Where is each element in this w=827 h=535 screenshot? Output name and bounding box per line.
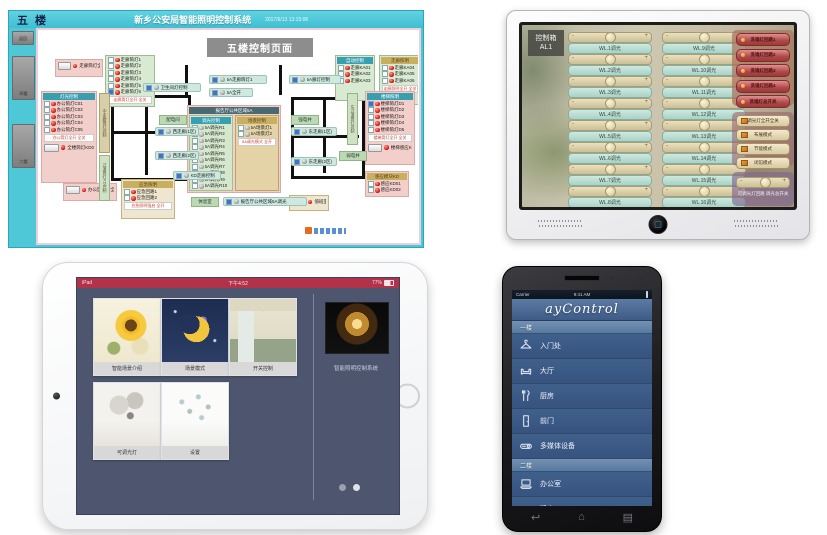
mode-button[interactable]: 节能模式 xyxy=(736,143,790,155)
dimmer-group: -+WL.5调光 xyxy=(568,120,652,142)
checkbox[interactable] xyxy=(294,159,300,165)
checkbox[interactable] xyxy=(238,131,244,137)
row-label: 5A调光R10 xyxy=(205,183,228,189)
minus-icon[interactable]: - xyxy=(666,77,668,84)
wall-washer-panel: 洗墙灯回路1洗墙灯回路2洗墙灯回路3洗墙灯回路4洗墙灯总开关 xyxy=(732,30,794,106)
kitchen-image xyxy=(230,299,296,362)
checkbox[interactable] xyxy=(176,173,182,179)
zone-footer: 办公筒灯全开 全关 xyxy=(44,134,94,142)
checkbox[interactable] xyxy=(44,120,50,126)
lamp-dot-icon xyxy=(741,38,745,42)
status-lamp-icon xyxy=(115,77,120,82)
indicator-row: 感应KD02 xyxy=(368,188,406,194)
collage-canvas: 五 楼 新乡公安局智能照明控制系统 2017/6/13 13:15:06 返回四… xyxy=(0,0,827,535)
checkbox[interactable] xyxy=(368,127,374,133)
checkbox[interactable] xyxy=(108,57,114,63)
status-lamp-icon xyxy=(345,72,350,77)
laptop-icon xyxy=(512,477,540,491)
minus-icon[interactable]: - xyxy=(572,55,574,62)
status-lamp-icon xyxy=(115,64,120,69)
page-dot-1[interactable] xyxy=(339,484,346,491)
checkbox[interactable] xyxy=(44,107,50,113)
row-label: 楼梯筒灯D5 xyxy=(381,127,405,133)
wall-washer-button[interactable]: 洗墙灯回路4 xyxy=(736,80,790,93)
slider-knob[interactable] xyxy=(699,54,710,65)
checkbox[interactable] xyxy=(192,144,198,150)
zone-panel: 应急照明应急回路1应急回路2应急照明强启 全开 xyxy=(121,179,175,219)
phone-navbar: ↩ ⌂ ▤ xyxy=(512,508,652,526)
minus-icon[interactable]: - xyxy=(666,143,668,150)
status-lamp-icon xyxy=(375,102,380,107)
scene-tile-sunflower[interactable]: 智能场景介绍 xyxy=(93,298,161,376)
switch-label: 西走廊(2区) xyxy=(173,153,197,159)
status-lamp-icon xyxy=(302,159,307,164)
scada-app-title: 新乡公安局智能照明控制系统 xyxy=(134,13,251,26)
plus-icon[interactable]: + xyxy=(644,77,648,84)
phone-front-camera xyxy=(611,276,614,279)
checkbox[interactable] xyxy=(158,153,164,159)
row-label: 应急回路2 xyxy=(137,195,158,201)
room-item-door[interactable]: 前门 xyxy=(512,409,652,434)
minus-icon[interactable]: - xyxy=(666,187,668,194)
status-lamp-icon xyxy=(184,173,189,178)
status-lamp-icon xyxy=(384,145,389,150)
lamp-dot-icon xyxy=(741,84,745,88)
row-label: 走廊KA03 xyxy=(351,78,371,84)
phone-carrier: Carrier xyxy=(516,292,530,297)
row-label: 走廊筒灯3 xyxy=(121,70,142,76)
minus-icon[interactable]: - xyxy=(666,99,668,106)
status-lamp-icon xyxy=(73,64,78,69)
wall-washer-button[interactable]: 洗墙灯回路1 xyxy=(736,33,790,46)
row-label: 走廊KA04 xyxy=(395,65,415,71)
bed-icon xyxy=(512,502,540,506)
menu-icon[interactable]: ▤ xyxy=(623,511,633,524)
plus-icon[interactable]: + xyxy=(644,187,648,194)
indicator-row: 办公筒灯C04 xyxy=(44,121,94,127)
indicator-row: 5A场景灯2 xyxy=(238,132,276,138)
system-title: 智能照明控制系统 xyxy=(317,364,395,372)
status-lamp-icon xyxy=(375,128,380,133)
button-label: 闭馆模式 xyxy=(754,160,772,166)
switch-label: 报告厅公共区域5A调光 xyxy=(241,199,287,205)
slider-knob[interactable] xyxy=(605,76,616,87)
scene-tile-flowers[interactable]: 设置 xyxy=(161,382,229,460)
room-item-sofa[interactable]: 大厅 xyxy=(512,359,652,384)
status-lamp-icon xyxy=(245,132,250,137)
checkbox[interactable] xyxy=(368,181,374,187)
indicator-row: 走廊KA05 xyxy=(382,72,418,78)
row-label: 楼梯筒灯D1 xyxy=(381,101,405,107)
checkbox[interactable] xyxy=(368,101,374,107)
mode-panel: 调光灯全开全关布展模式节能模式闭馆模式 xyxy=(732,112,794,166)
switch-label: 卫生间灯控制 xyxy=(161,85,188,91)
zone-header: 楼梯照明 xyxy=(367,93,413,100)
minus-icon[interactable]: - xyxy=(572,121,574,128)
page-dot-2[interactable] xyxy=(353,484,360,491)
zone-footer: 楼梯筒灯全开 全关 xyxy=(368,134,412,142)
indicator-row: 感应KD01 xyxy=(368,181,406,187)
room-item-hanger[interactable]: 入门处 xyxy=(512,334,652,359)
master-dimmer-panel: - + 可调光灯回路 调光总开关 xyxy=(732,172,794,206)
dimmer-slider[interactable]: -+ xyxy=(568,54,652,65)
vertical-zone-strip: 东过道筒灯控制 xyxy=(347,93,358,145)
inline-switch[interactable]: 5A走廊筒灯1 xyxy=(209,75,267,84)
push-button[interactable] xyxy=(368,144,382,152)
sofa-icon xyxy=(512,364,540,378)
room-name-chip: 休息室 xyxy=(191,197,219,207)
subpanel-header: 场景控制 xyxy=(237,117,277,124)
slider-knob[interactable] xyxy=(605,98,616,109)
minus-icon[interactable]: - xyxy=(572,33,574,40)
cutlery-icon xyxy=(512,389,540,403)
smartphone: 9:41 AM Carrier ayControl 一楼入门处大厅厨房前门多媒体… xyxy=(502,266,662,532)
dimmer-label: WL.5调光 xyxy=(568,131,652,142)
slider-knob[interactable] xyxy=(605,142,616,153)
checkbox[interactable] xyxy=(192,138,198,144)
room-label: 大厅 xyxy=(540,366,554,376)
checkbox[interactable] xyxy=(44,101,50,107)
wall-washer-button[interactable]: 洗墙灯回路2 xyxy=(736,49,790,62)
inline-switch[interactable]: 西走廊(2区) xyxy=(155,151,199,160)
zone-button-row: 楼梯感应KD xyxy=(368,144,412,152)
switch-label: 东走廊(1区) xyxy=(309,129,333,135)
indicator-row: 办公筒灯C05 xyxy=(44,127,94,133)
touch-panel: 控制箱 AL1 -+WL.1调光-+WL.2调光-+WL.3调光-+WL.4调光… xyxy=(506,10,810,240)
checkbox[interactable] xyxy=(212,77,218,83)
checkbox[interactable] xyxy=(382,65,388,71)
scada-titlebar: 五 楼 新乡公安局智能照明控制系统 2017/6/13 13:15:06 xyxy=(9,11,423,28)
speaker-grill-right xyxy=(734,220,778,227)
tile-label: 场景模式 xyxy=(162,362,228,375)
checkbox[interactable] xyxy=(212,90,218,96)
minus-icon[interactable]: - xyxy=(666,165,668,172)
slider-knob[interactable] xyxy=(699,76,710,87)
dimmer-group: -+WL.4调光 xyxy=(568,98,652,120)
minus-icon[interactable]: - xyxy=(572,165,574,172)
inline-switch[interactable]: 5A全开 xyxy=(209,88,253,97)
slider-knob[interactable] xyxy=(605,186,616,197)
slider-knob[interactable] xyxy=(699,142,710,153)
minus-icon[interactable]: - xyxy=(572,187,574,194)
zone-button-row: 走廊筒灯全开 xyxy=(58,62,100,70)
row-label: 办公筒灯C01 xyxy=(57,101,83,107)
status-lamp-icon xyxy=(199,152,204,157)
row-label: 楼梯筒灯D4 xyxy=(381,120,405,126)
room-label: 入门处 xyxy=(540,341,561,351)
plus-icon[interactable]: + xyxy=(782,178,786,185)
mode-indicator-icon xyxy=(741,118,748,125)
indicator-row: 走廊KA01 xyxy=(338,65,372,71)
status-lamp-icon xyxy=(375,108,380,113)
checkbox[interactable] xyxy=(124,189,130,195)
dimmer-group: -+WL.7调光 xyxy=(568,164,652,186)
room-item-laptop[interactable]: 办公室 xyxy=(512,472,652,497)
mode-indicator-icon xyxy=(741,146,748,153)
indicator-row: 5A调光R10 xyxy=(192,184,230,190)
divider xyxy=(313,294,314,500)
status-lamp-icon xyxy=(345,79,350,84)
indicator-row: 5A调光R3 xyxy=(192,138,230,144)
room-name-chip: 强电井 xyxy=(291,115,319,125)
indicator-row: 5A场景灯1 xyxy=(238,125,276,131)
vendor-logo-icon xyxy=(305,227,312,234)
sidebar-button-1[interactable]: 返回 xyxy=(12,31,34,45)
checkbox[interactable] xyxy=(368,187,374,193)
checkbox[interactable] xyxy=(146,85,152,91)
tablet-screen: 下午4:52 iPad 77% 智能场景介绍场景模式开关控制可调光灯设置 智能照… xyxy=(76,277,400,515)
dimmer-group: -+WL.1调光 xyxy=(568,32,652,54)
room-label: 睡房 xyxy=(540,504,554,506)
dimmer-slider[interactable]: -+ xyxy=(568,76,652,87)
phone-time: 9:41 AM xyxy=(512,292,652,297)
plus-icon[interactable]: + xyxy=(644,121,648,128)
checkbox[interactable] xyxy=(368,107,374,113)
status-lamp-icon xyxy=(375,182,380,187)
scada-window: 五 楼 新乡公安局智能照明控制系统 2017/6/13 13:15:06 返回四… xyxy=(8,10,424,248)
switch-label: 5A廊灯控制 xyxy=(307,77,331,83)
slider-knob[interactable] xyxy=(699,120,710,131)
subpanel-header: 调光控制 xyxy=(191,117,231,124)
checkbox[interactable] xyxy=(158,129,164,135)
status-lamp-icon xyxy=(302,129,307,134)
row-label: 5A调光R3 xyxy=(205,138,225,144)
checkbox[interactable] xyxy=(368,120,374,126)
battery-icon xyxy=(646,291,648,298)
checkbox[interactable] xyxy=(192,183,198,189)
dimmer-group: -+WL.6调光 xyxy=(568,142,652,164)
checkbox[interactable] xyxy=(294,129,300,135)
indicator-row: 楼梯筒灯D3 xyxy=(368,114,412,120)
slider-knob[interactable] xyxy=(699,186,710,197)
status-lamp-icon xyxy=(389,66,394,71)
master-dimmer-slider[interactable]: - + xyxy=(736,177,790,188)
slider-knob[interactable] xyxy=(699,32,710,43)
row-label: 感应KD01 xyxy=(381,181,401,187)
tablet-statusbar: 下午4:52 iPad 77% xyxy=(77,278,399,288)
status-lamp-icon xyxy=(131,196,136,201)
indicator-row: 楼梯筒灯D1 xyxy=(368,101,412,107)
row-label: 应急回路1 xyxy=(137,189,158,195)
dimmer-slider[interactable]: -+ xyxy=(568,120,652,131)
inline-switch[interactable]: 5A廊灯控制 xyxy=(289,75,341,84)
minus-icon[interactable]: - xyxy=(666,55,668,62)
dimmer-slider[interactable]: -+ xyxy=(568,142,652,153)
indicator-row: 办公筒灯C03 xyxy=(44,114,94,120)
checkbox[interactable] xyxy=(44,127,50,133)
lamp-dot-icon xyxy=(741,53,745,57)
indicator-row: 应急回路2 xyxy=(124,196,172,202)
indicator-row: 5A调光R4 xyxy=(192,145,230,151)
slider-knob[interactable] xyxy=(605,54,616,65)
mode-indicator-icon xyxy=(741,160,748,167)
checkbox[interactable] xyxy=(192,164,198,170)
minus-icon[interactable]: - xyxy=(572,99,574,106)
slider-knob[interactable] xyxy=(699,98,710,109)
checkbox[interactable] xyxy=(124,195,130,201)
control-box-label: 控制箱 AL1 xyxy=(528,30,564,56)
checkbox[interactable] xyxy=(108,76,114,82)
minus-icon[interactable]: - xyxy=(740,178,742,185)
slider-knob[interactable] xyxy=(605,120,616,131)
section-header-1: 一楼 xyxy=(512,321,652,334)
inline-switch[interactable]: 报告厅公共区域5A调光 xyxy=(223,197,307,206)
dimmer-slider[interactable]: -+ xyxy=(568,32,652,43)
dimmer-group: -+WL.3调光 xyxy=(568,76,652,98)
dimmer-label: WL.2调光 xyxy=(568,65,652,76)
wall-washer-button[interactable]: 洗墙灯回路3 xyxy=(736,64,790,77)
master-dimmer-label: 可调光灯回路 调光总开关 xyxy=(736,191,790,197)
status-lamp-icon xyxy=(220,77,225,82)
indicator-row: 走廊筒灯4 xyxy=(108,77,152,83)
status-lamp-icon xyxy=(389,72,394,77)
scada-main-area: 五楼控制页面 走廊筒灯全开走廊筒灯1走廊筒灯2走廊筒灯3走廊筒灯4走廊筒灯5走廊… xyxy=(36,28,421,245)
row-label: 5A调光R7 xyxy=(205,164,225,170)
inline-switch[interactable]: 西走廊(1区) xyxy=(155,127,199,136)
status-lamp-icon xyxy=(199,145,204,150)
vertical-zone-strip: 中走廊筒灯控制 xyxy=(99,93,110,153)
dimmer-label: WL.3调光 xyxy=(568,87,652,98)
row-label: 5A场景灯2 xyxy=(251,131,273,137)
status-lamp-icon xyxy=(199,184,204,189)
minus-icon[interactable]: - xyxy=(572,143,574,150)
zone-footer: 走廊筒灯全开 全关 xyxy=(108,96,152,104)
plus-icon[interactable]: + xyxy=(644,165,648,172)
row-label: 楼梯筒灯D3 xyxy=(381,114,405,120)
zone-panel: 走廊筒灯1走廊筒灯2走廊筒灯3走廊筒灯4走廊筒灯5走廊筒灯6走廊筒灯全开 全关 xyxy=(105,55,155,107)
dimmer-column-left: -+WL.1调光-+WL.2调光-+WL.3调光-+WL.4调光-+WL.5调光… xyxy=(568,32,652,207)
checkbox[interactable] xyxy=(382,78,388,84)
row-label: 走廊KA06 xyxy=(395,78,415,84)
hanger-icon xyxy=(512,339,540,353)
slider-knob[interactable] xyxy=(605,32,616,43)
row-label: 5A调光R4 xyxy=(205,144,225,150)
push-button[interactable] xyxy=(44,144,59,152)
checkbox[interactable] xyxy=(108,70,114,76)
room-label: 厨房 xyxy=(540,391,554,401)
slider-knob[interactable] xyxy=(605,164,616,175)
mode-button[interactable]: 调光灯全开全关 xyxy=(736,115,790,127)
slider-knob[interactable] xyxy=(760,177,771,188)
button-label: 楼梯感应KD xyxy=(391,145,412,151)
inline-switch[interactable]: KD走廊控制 xyxy=(173,171,221,180)
status-lamp-icon xyxy=(245,126,250,131)
scene-tile-lamp[interactable]: 可调光灯 xyxy=(93,382,161,460)
battery-percent: 77% xyxy=(372,280,382,286)
floor-tab-label: 五 楼 xyxy=(9,12,56,28)
push-button[interactable] xyxy=(66,186,80,194)
room-item-projector[interactable]: 多媒体设备 xyxy=(512,434,652,459)
back-icon[interactable]: ↩ xyxy=(531,511,540,524)
indicator-row: 办公筒灯C01 xyxy=(44,101,94,107)
checkbox[interactable] xyxy=(108,63,114,69)
zone-header: 自动控制 xyxy=(337,57,373,64)
checkbox[interactable] xyxy=(226,199,232,205)
dimmer-slider[interactable]: -+ xyxy=(568,164,652,175)
moon-image xyxy=(162,299,228,362)
room-label: 多媒体设备 xyxy=(540,441,575,451)
checkbox[interactable] xyxy=(338,65,344,71)
vertical-zone-strip: 过道筒灯KD控制 xyxy=(99,155,110,201)
status-lamp-icon xyxy=(51,128,56,133)
flowers-image xyxy=(162,383,228,446)
inline-switch[interactable]: 卫生间灯控制 xyxy=(143,83,201,92)
indicator-row: 楼梯筒灯D5 xyxy=(368,127,412,133)
plus-icon[interactable]: + xyxy=(644,55,648,62)
sidebar-button-2[interactable]: 四楼 xyxy=(12,56,35,100)
sidebar-button-3[interactable]: 六楼 xyxy=(12,124,35,168)
panel-home-button[interactable] xyxy=(649,215,668,234)
room-item-bed[interactable]: 睡房 xyxy=(512,497,652,506)
checkbox[interactable] xyxy=(382,71,388,77)
checkbox[interactable] xyxy=(108,83,114,89)
zone-footer: 5A调光模式 全开 xyxy=(238,138,276,146)
lamp-dot-icon xyxy=(741,100,745,104)
dimmer-group: -+WL.2调光 xyxy=(568,54,652,76)
tablet-camera xyxy=(53,393,60,400)
dimmer-label: WL.4调光 xyxy=(568,109,652,120)
push-button[interactable] xyxy=(58,62,71,70)
lamp-dot-icon xyxy=(741,69,745,73)
status-lamp-icon xyxy=(375,121,380,126)
sunflower-image xyxy=(94,299,160,362)
row-label: 5A场景灯1 xyxy=(251,125,273,131)
button-label: 洗墙灯回路3 xyxy=(750,68,775,74)
checkbox[interactable] xyxy=(368,114,374,120)
zone-button-row: 全楼筒灯KD01 xyxy=(44,144,94,152)
scene-tile-moon[interactable]: 场景模式 xyxy=(161,298,229,376)
slider-knob[interactable] xyxy=(699,164,710,175)
minus-icon[interactable]: - xyxy=(572,77,574,84)
scene-tile-kitchen[interactable]: 开关控制 xyxy=(229,298,297,376)
plus-icon[interactable]: + xyxy=(644,143,648,150)
mode-button[interactable]: 闭馆模式 xyxy=(736,157,790,169)
room-item-cutlery[interactable]: 厨房 xyxy=(512,384,652,409)
row-label: 走廊KA01 xyxy=(351,65,371,71)
checkbox[interactable] xyxy=(238,125,244,131)
projector-icon xyxy=(512,439,540,453)
switch-label: 5A全开 xyxy=(227,90,242,96)
plus-icon[interactable]: + xyxy=(644,33,648,40)
inline-switch[interactable]: 东走廊(1区) xyxy=(291,127,337,136)
minus-icon[interactable]: - xyxy=(666,33,668,40)
floorplan: 五楼控制页面 走廊筒灯全开走廊筒灯1走廊筒灯2走廊筒灯3走廊筒灯4走廊筒灯5走廊… xyxy=(39,31,418,242)
minus-icon[interactable]: - xyxy=(666,121,668,128)
indicator-row: 走廊筒灯2 xyxy=(108,64,152,70)
mode-button[interactable]: 布展模式 xyxy=(736,129,790,141)
phone-app-header: ayControl xyxy=(512,299,652,321)
indicator-row: 应急回路1 xyxy=(124,189,172,195)
dimmer-slider[interactable]: -+ xyxy=(568,186,652,197)
row-label: 走廊筒灯2 xyxy=(121,63,142,69)
plus-icon[interactable]: + xyxy=(644,99,648,106)
dimmer-slider[interactable]: -+ xyxy=(568,98,652,109)
checkbox[interactable] xyxy=(292,77,298,83)
speaker-grill-left xyxy=(538,220,582,227)
button-label: 洗墙灯回路2 xyxy=(750,52,775,58)
home-icon[interactable]: ⌂ xyxy=(578,511,585,523)
row-label: 楼梯筒灯D2 xyxy=(381,107,405,113)
indicator-row: 走廊KA04 xyxy=(382,65,418,71)
button-label: 洗墙灯回路4 xyxy=(750,83,775,89)
inline-switch[interactable]: 东走廊(2区) xyxy=(291,157,337,166)
status-lamp-icon xyxy=(115,90,120,95)
wall-washer-button[interactable]: 洗墙灯总开关 xyxy=(736,95,790,108)
checkbox[interactable] xyxy=(44,114,50,120)
row-label: 走廊KA05 xyxy=(395,71,415,77)
status-lamp-icon xyxy=(51,108,56,113)
phone-screen: 9:41 AM Carrier ayControl 一楼入门处大厅厨房前门多媒体… xyxy=(512,290,652,506)
